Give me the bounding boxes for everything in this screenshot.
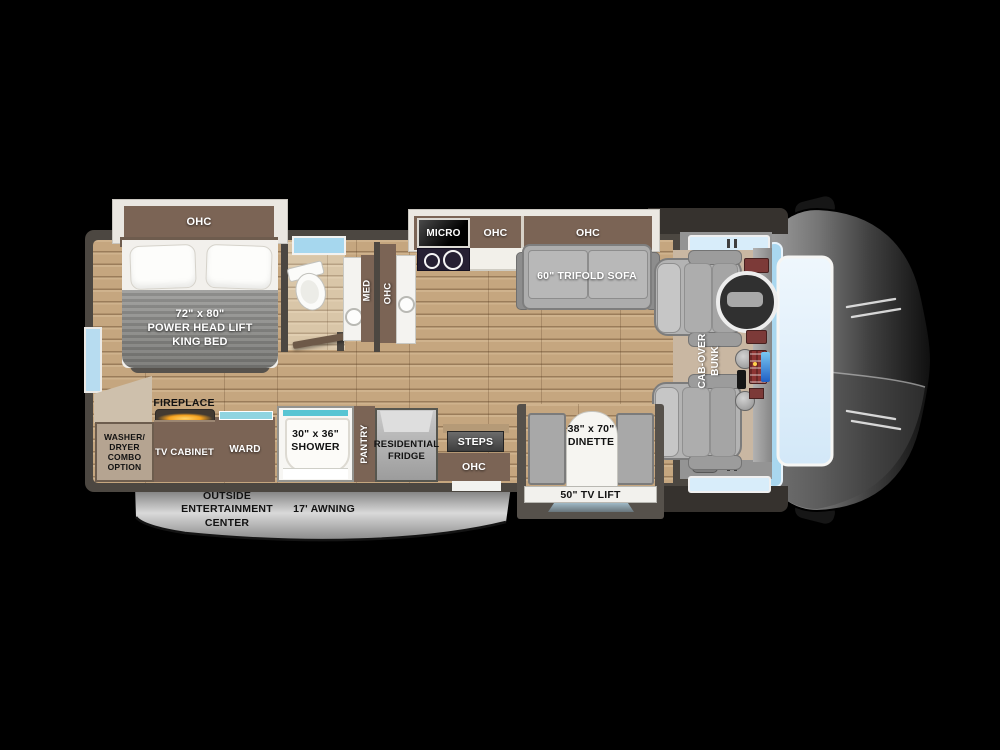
cab-roofline-top (648, 208, 788, 234)
wardrobe: WARD (215, 417, 275, 482)
fridge-door (380, 411, 433, 432)
passenger-seat-cushion (710, 387, 736, 457)
driver-door-handle (727, 239, 730, 248)
shower-sill (283, 468, 348, 479)
rv-floorplan: OUTSIDE ENTERTAINMENT CENTER 17' AWNING (0, 0, 1000, 750)
entry-ohc-cabinet: OHC (438, 453, 510, 481)
tv-cabinet: TV CABINET (154, 420, 215, 482)
kitchen-sink-icon (398, 296, 415, 313)
dinette-label: 38" x 70" DINETTE (558, 420, 624, 452)
med-label: MED (361, 271, 374, 311)
passenger-seat-armrest (688, 455, 742, 470)
bathroom-wall (281, 240, 288, 352)
windshield (778, 257, 832, 465)
awning-label: 17' AWNING (281, 500, 367, 518)
fridge-label: RESIDENTIAL FRIDGE (375, 436, 438, 466)
washer-dryer-combo: WASHER/ DRYER COMBO OPTION (95, 422, 154, 482)
console-indicator (753, 362, 757, 366)
passenger-seat-cushion (682, 387, 710, 457)
console-slot (737, 370, 746, 389)
driver-door-handle (734, 239, 737, 248)
rv-front-cap (755, 195, 940, 525)
fireplace-label: FIREPLACE (146, 396, 222, 409)
console-screen (761, 352, 770, 382)
kitchen-ohc-vertical-label: OHC (382, 274, 395, 314)
bathroom-window (292, 236, 346, 255)
bed-pillow (205, 244, 272, 290)
console-button (749, 388, 764, 399)
dash-panel (746, 330, 767, 344)
burner (424, 253, 440, 269)
shower-label: 30" x 36" SHOWER (282, 424, 349, 458)
outside-entertainment-label: OUTSIDE ENTERTAINMENT CENTER (162, 487, 292, 533)
steering-hub (727, 292, 763, 307)
microwave: MICRO (417, 218, 470, 248)
king-bed-label: 72" x 80" POWER HEAD LIFT KING BED (122, 296, 278, 362)
kitchen-ohc-label: OHC (470, 216, 521, 250)
burner (443, 250, 463, 270)
pantry-label: PANTRY (357, 414, 371, 474)
driver-seat-back (657, 263, 681, 333)
tv-lift: 50" TV LIFT (524, 486, 657, 503)
bedroom-window (84, 327, 102, 393)
ward-window (219, 411, 273, 420)
shower-glass (283, 410, 348, 416)
cab-over-bunk-label: CAB-OVER BUNK (694, 330, 724, 392)
bed-pillow (129, 244, 196, 290)
sofa-label: 60" TRIFOLD SOFA (524, 266, 650, 286)
driver-seat-cushion (684, 263, 712, 333)
tv-icon (548, 503, 634, 512)
passenger-door-window (688, 476, 771, 493)
entry-steps: STEPS (447, 431, 504, 452)
bedroom-ohc-label: OHC (124, 210, 274, 234)
entry-door (452, 481, 501, 491)
